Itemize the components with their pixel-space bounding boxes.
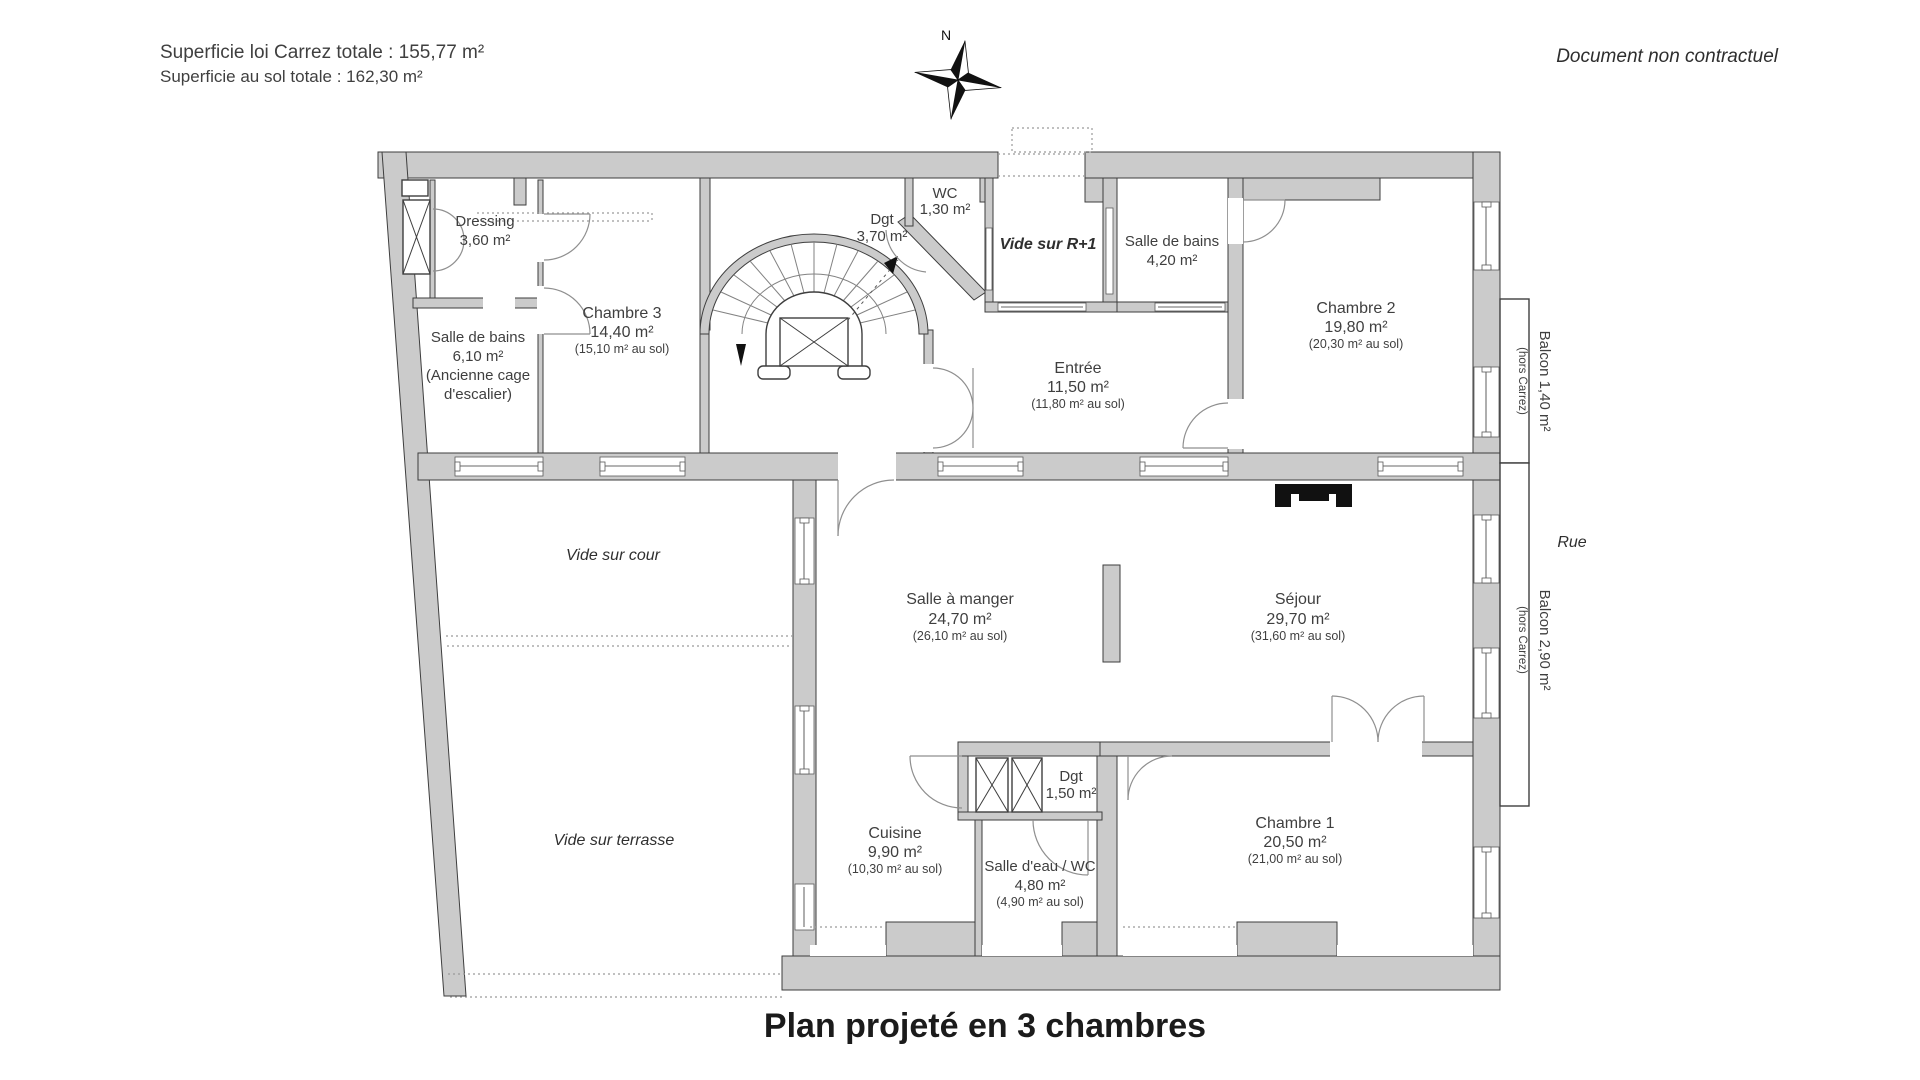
svg-text:6,10 m²: 6,10 m² <box>453 348 504 365</box>
room-label-salle-a-manger: Salle à manger 24,70 m² (26,10 m² au sol… <box>906 591 1014 643</box>
svg-text:(20,30 m² au sol): (20,30 m² au sol) <box>1309 337 1403 351</box>
room-label-sejour: Séjour 29,70 m² (31,60 m² au sol) <box>1251 591 1345 643</box>
svg-text:1,30 m²: 1,30 m² <box>920 201 971 218</box>
svg-text:Dressing: Dressing <box>455 213 514 230</box>
total-area-carrez: Superficie loi Carrez totale : 155,77 m² <box>160 42 484 63</box>
compass-north-label: N <box>941 27 951 43</box>
svg-text:(10,30 m² au sol): (10,30 m² au sol) <box>848 862 942 876</box>
dotted-guides <box>446 128 1237 997</box>
doors <box>433 200 1424 875</box>
svg-text:Chambre 3: Chambre 3 <box>582 305 661 322</box>
svg-text:Balcon 1,40 m²: Balcon 1,40 m² <box>1536 331 1553 432</box>
room-label-dressing: Dressing 3,60 m² <box>455 213 514 249</box>
svg-text:d'escalier): d'escalier) <box>444 386 512 403</box>
label-rue: Rue <box>1557 534 1586 551</box>
svg-text:Chambre 2: Chambre 2 <box>1316 300 1395 317</box>
svg-text:19,80 m²: 19,80 m² <box>1324 319 1388 336</box>
compass-rose-icon: N <box>908 27 1009 127</box>
svg-text:(Ancienne cage: (Ancienne cage <box>426 367 530 384</box>
room-label-wc: WC 1,30 m² <box>920 185 971 218</box>
room-label-chambre-2: Chambre 2 19,80 m² (20,30 m² au sol) <box>1309 300 1403 351</box>
svg-text:14,40 m²: 14,40 m² <box>590 324 654 341</box>
svg-text:Cuisine: Cuisine <box>868 825 921 842</box>
disclaimer: Document non contractuel <box>1556 46 1779 67</box>
room-label-chambre-3: Chambre 3 14,40 m² (15,10 m² au sol) <box>575 305 669 356</box>
page-title: Plan projeté en 3 chambres <box>764 1007 1206 1045</box>
svg-text:Chambre 1: Chambre 1 <box>1255 815 1334 832</box>
fireplace-icon <box>1275 484 1352 507</box>
svg-text:(26,10 m² au sol): (26,10 m² au sol) <box>913 629 1007 643</box>
svg-text:(4,90 m² au sol): (4,90 m² au sol) <box>996 895 1084 909</box>
svg-text:9,90 m²: 9,90 m² <box>868 844 923 861</box>
room-label-chambre-1: Chambre 1 20,50 m² (21,00 m² au sol) <box>1248 815 1342 866</box>
svg-text:Salle à manger: Salle à manger <box>906 591 1014 608</box>
svg-text:3,60 m²: 3,60 m² <box>460 232 511 249</box>
svg-text:4,20 m²: 4,20 m² <box>1147 252 1198 269</box>
svg-text:Entrée: Entrée <box>1054 360 1101 377</box>
svg-text:(21,00 m² au sol): (21,00 m² au sol) <box>1248 852 1342 866</box>
svg-text:1,50 m²: 1,50 m² <box>1046 785 1097 802</box>
room-label-degagement-haut: Dgt 3,70 m² <box>857 211 908 245</box>
svg-text:Séjour: Séjour <box>1275 591 1322 608</box>
label-vide-sur-r1: Vide sur R+1 <box>1000 236 1097 253</box>
label-vide-sur-cour: Vide sur cour <box>566 547 661 564</box>
svg-text:(31,60 m² au sol): (31,60 m² au sol) <box>1251 629 1345 643</box>
room-label-degagement-bas: Dgt 1,50 m² <box>1046 768 1097 802</box>
svg-text:(hors Carrez): (hors Carrez) <box>1516 347 1528 415</box>
svg-text:Salle de bains: Salle de bains <box>431 329 525 346</box>
svg-text:29,70 m²: 29,70 m² <box>1266 611 1330 628</box>
svg-text:Dgt: Dgt <box>1059 768 1083 785</box>
label-vide-sur-terrasse: Vide sur terrasse <box>554 832 675 849</box>
svg-text:(15,10 m² au sol): (15,10 m² au sol) <box>575 342 669 356</box>
room-label-cuisine: Cuisine 9,90 m² (10,30 m² au sol) <box>848 825 942 876</box>
svg-text:(11,80 m² au sol): (11,80 m² au sol) <box>1031 397 1125 411</box>
total-area-floor: Superficie au sol totale : 162,30 m² <box>160 67 423 86</box>
room-label-salle-de-bains-haut: Salle de bains 6,10 m² (Ancienne cage d'… <box>426 329 530 403</box>
room-label-salle-de-bains-420: Salle de bains 4,20 m² <box>1125 233 1219 269</box>
svg-text:4,80 m²: 4,80 m² <box>1015 877 1066 894</box>
svg-text:Balcon 2,90 m²: Balcon 2,90 m² <box>1536 590 1553 691</box>
floor-plan-page: N Superficie loi Carrez totale : 155,77 … <box>0 0 1920 1080</box>
room-label-entree: Entrée 11,50 m² (11,80 m² au sol) <box>1031 360 1125 411</box>
svg-text:20,50 m²: 20,50 m² <box>1263 834 1327 851</box>
floor-plan-svg: N Superficie loi Carrez totale : 155,77 … <box>0 0 1920 1080</box>
svg-text:Salle d'eau / WC: Salle d'eau / WC <box>984 858 1095 875</box>
stair-direction-arrow-down <box>736 344 746 366</box>
svg-text:Salle de bains: Salle de bains <box>1125 233 1219 250</box>
svg-text:3,70 m²: 3,70 m² <box>857 228 908 245</box>
svg-text:11,50 m²: 11,50 m² <box>1047 379 1110 396</box>
svg-text:(hors Carrez): (hors Carrez) <box>1516 606 1528 674</box>
svg-text:24,70 m²: 24,70 m² <box>928 611 992 628</box>
svg-text:Dgt: Dgt <box>870 211 894 228</box>
room-label-salle-eau-wc: Salle d'eau / WC 4,80 m² (4,90 m² au sol… <box>984 858 1095 909</box>
svg-text:WC: WC <box>933 185 958 202</box>
